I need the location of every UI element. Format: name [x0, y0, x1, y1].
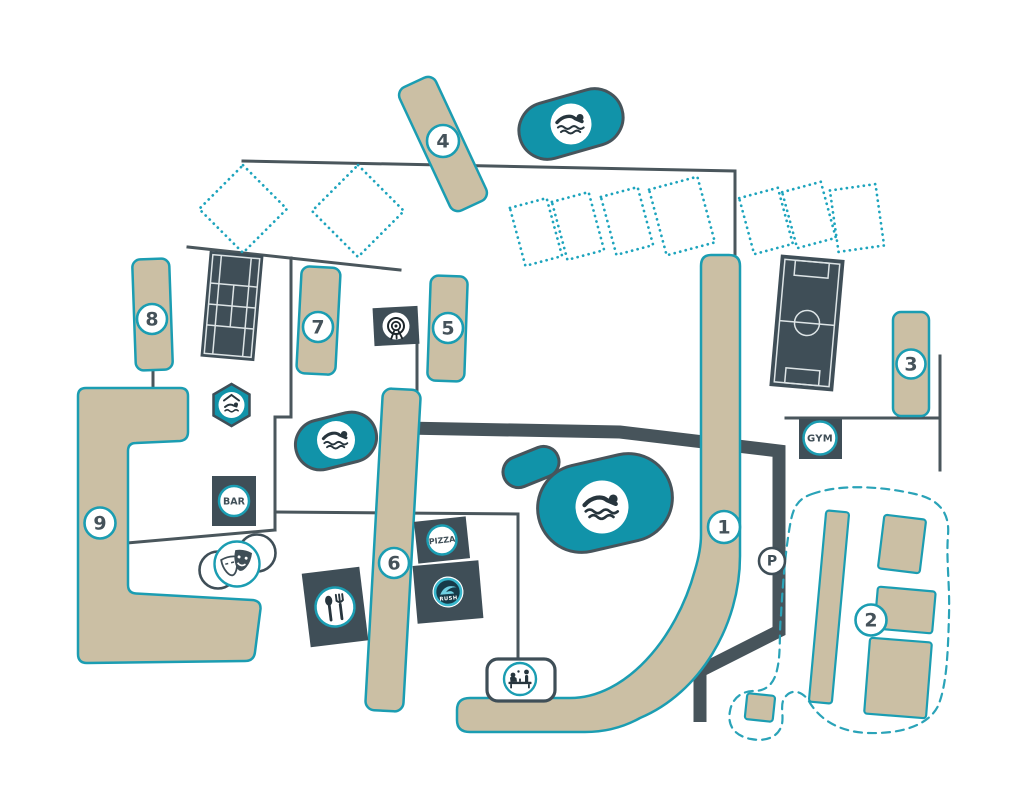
marker-4[interactable]: 4 — [427, 125, 459, 157]
pool-top — [512, 82, 630, 166]
parking-marker[interactable]: P — [759, 548, 785, 574]
svg-text:2: 2 — [864, 610, 877, 632]
svg-text:6: 6 — [387, 553, 400, 575]
marker-8[interactable]: 8 — [137, 304, 167, 334]
marker-2[interactable]: 2 — [856, 605, 887, 636]
pool-middle — [290, 407, 382, 475]
building-2-block-e — [745, 693, 776, 722]
waterpark-amenity[interactable]: RUSH — [413, 560, 484, 624]
gym-amenity[interactable]: GYM — [799, 419, 842, 459]
pitch-rect — [601, 187, 653, 255]
restaurant-amenity[interactable] — [302, 567, 369, 648]
bar-label: BAR — [223, 497, 246, 508]
svg-text:5: 5 — [441, 318, 454, 340]
pizza-amenity[interactable]: PIZZA — [414, 516, 470, 563]
bar-amenity[interactable]: BAR — [212, 476, 256, 526]
games-amenity[interactable] — [487, 659, 555, 701]
road-vertical-step — [275, 258, 291, 530]
marker-6[interactable]: 6 — [379, 548, 409, 578]
marker-7[interactable]: 7 — [303, 312, 333, 342]
pitch-diamond — [199, 165, 287, 253]
resort-map: BAR PIZZA RUSH — [0, 0, 1024, 809]
marker-3[interactable]: 3 — [897, 350, 926, 379]
building-2-block-d — [864, 638, 932, 719]
indoor-pool-badge[interactable] — [214, 384, 250, 426]
building-2-block-b — [878, 515, 926, 574]
svg-text:4: 4 — [436, 131, 449, 153]
building-2-zone — [729, 487, 949, 740]
marker-9[interactable]: 9 — [85, 508, 116, 539]
pool-main — [498, 442, 681, 561]
map-canvas: BAR PIZZA RUSH — [0, 0, 1024, 809]
gym-label: GYM — [807, 434, 833, 445]
pitch-rect — [830, 184, 884, 252]
football-pitch — [769, 254, 844, 391]
building-2-block-a — [809, 510, 849, 703]
marker-1[interactable]: 1 — [708, 511, 740, 543]
theatre-amenity[interactable] — [200, 535, 276, 589]
pitch-diamond — [312, 165, 404, 257]
pitch-markers — [199, 165, 884, 266]
svg-text:1: 1 — [717, 517, 730, 539]
pitch-rect — [649, 177, 715, 256]
road-top-boundary — [243, 161, 735, 257]
pitch-rect — [739, 188, 793, 254]
svg-text:3: 3 — [904, 354, 917, 376]
archery-amenity[interactable] — [373, 306, 420, 346]
marker-5[interactable]: 5 — [433, 313, 463, 343]
tennis-court — [200, 251, 263, 361]
svg-text:8: 8 — [145, 309, 158, 331]
svg-text:7: 7 — [311, 317, 324, 339]
svg-text:9: 9 — [93, 513, 106, 535]
parking-label: P — [767, 554, 777, 570]
